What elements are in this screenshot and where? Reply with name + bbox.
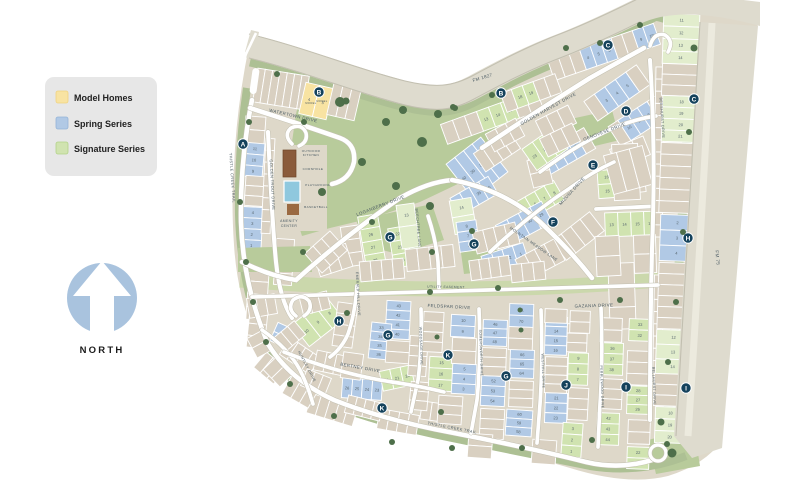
svg-text:G: G (503, 373, 508, 380)
svg-text:C: C (606, 42, 611, 49)
svg-text:E: E (591, 162, 596, 169)
svg-text:KITCHEN: KITCHEN (303, 153, 319, 157)
svg-text:G: G (387, 234, 392, 241)
svg-text:C: C (692, 96, 697, 103)
svg-text:CORNHOLE: CORNHOLE (303, 167, 324, 171)
svg-text:MODEL: MODEL (305, 101, 316, 105)
svg-text:B: B (317, 89, 322, 96)
svg-text:D: D (624, 108, 629, 115)
svg-text:NORTH: NORTH (80, 345, 125, 356)
svg-text:UTILITY EASEMENT: UTILITY EASEMENT (427, 285, 465, 290)
svg-text:K: K (446, 352, 451, 359)
svg-text:CENTER: CENTER (281, 224, 297, 228)
svg-text:I: I (685, 385, 687, 392)
svg-text:A: A (241, 141, 246, 148)
svg-text:B: B (499, 90, 504, 97)
svg-text:G: G (385, 332, 390, 339)
svg-text:K: K (380, 405, 385, 412)
svg-text:J: J (564, 382, 568, 389)
svg-text:AMENITY: AMENITY (280, 219, 298, 223)
svg-text:BASKETBALL: BASKETBALL (304, 205, 328, 209)
svg-text:PLAYGROUND: PLAYGROUND (305, 183, 331, 187)
svg-text:I: I (625, 384, 627, 391)
svg-text:Spring Series: Spring Series (74, 119, 132, 129)
svg-text:H: H (337, 318, 342, 325)
svg-text:Signature Series: Signature Series (74, 144, 145, 154)
svg-text:H: H (686, 235, 691, 242)
svg-text:MODEL: MODEL (316, 99, 327, 103)
svg-text:F: F (551, 219, 555, 226)
svg-text:G: G (471, 241, 476, 248)
svg-text:Model Homes: Model Homes (74, 93, 133, 103)
